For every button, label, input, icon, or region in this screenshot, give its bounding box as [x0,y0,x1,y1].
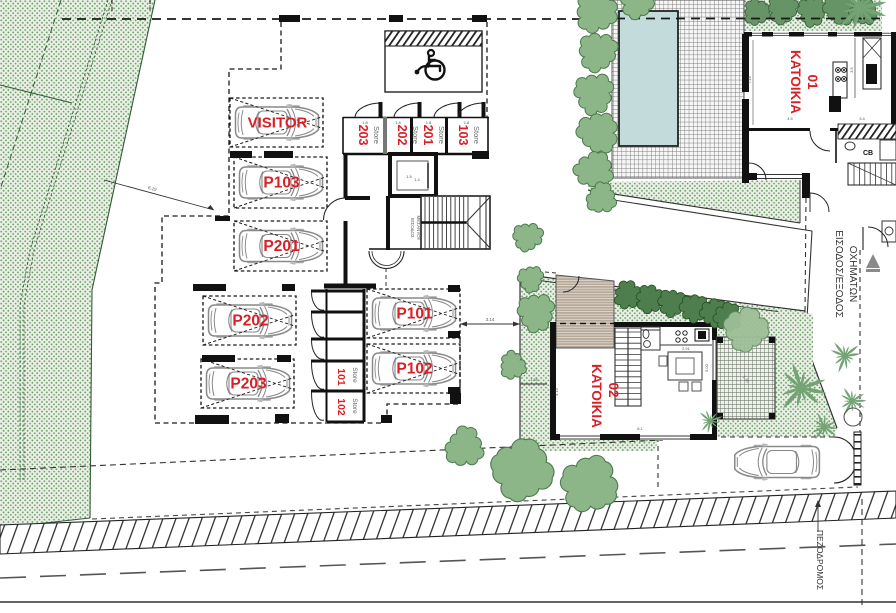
svg-text:ΠΕΖΟΔΡΟΜΟΣ: ΠΕΖΟΔΡΟΜΟΣ [815,530,825,590]
svg-text:Store: Store [351,367,358,383]
svg-text:203: 203 [356,125,370,146]
svg-text:P201: P201 [263,238,300,255]
svg-text:Store: Store [372,126,381,144]
svg-text:ΕΙΣΟΔΟΣ: ΕΙΣΟΔΟΣ [410,218,415,238]
svg-text:1.5: 1.5 [406,174,412,179]
svg-text:CB: CB [863,150,873,157]
svg-text:3.14: 3.14 [486,317,495,322]
svg-text:P202: P202 [232,313,268,330]
svg-text:01: 01 [805,74,820,90]
svg-text:ΚΑΤΟΙΚΙΑ: ΚΑΤΟΙΚΙΑ [589,364,604,428]
svg-text:VISITOR: VISITOR [248,115,308,132]
svg-text:1.35: 1.35 [530,377,539,382]
svg-text:Store: Store [472,126,481,144]
svg-text:8.1: 8.1 [637,426,643,431]
svg-text:1.8: 1.8 [426,120,432,125]
svg-text:102: 102 [335,398,347,416]
svg-text:202: 202 [395,125,409,146]
svg-text:103: 103 [456,125,470,146]
svg-text:1.8: 1.8 [362,120,368,125]
svg-text:P101: P101 [396,306,433,323]
svg-text:P203: P203 [230,376,267,393]
svg-text:P102: P102 [396,361,432,378]
svg-text:201: 201 [421,125,435,146]
svg-text:Store: Store [411,126,420,144]
svg-text:1.8: 1.8 [395,120,401,125]
svg-text:4.15: 4.15 [554,387,559,396]
svg-text:1.8: 1.8 [464,120,470,125]
svg-text:Store: Store [351,398,358,414]
svg-text:101: 101 [335,368,347,386]
svg-text:ΜΕΣΑΝΥΟΥ: ΜΕΣΑΝΥΟΥ [416,216,421,241]
svg-text:5.00: 5.00 [704,363,709,372]
svg-text:ΕΙΣΟΔΟΣ/ΕΞΟΔΟΣ: ΕΙΣΟΔΟΣ/ΕΞΟΔΟΣ [833,230,844,318]
svg-text:Store: Store [437,126,446,144]
svg-text:1.4: 1.4 [414,177,420,182]
svg-text:P103: P103 [263,175,300,192]
svg-text:02: 02 [606,382,621,397]
svg-text:ΚΑΤΟΙΚΙΑ: ΚΑΤΟΙΚΙΑ [788,50,803,114]
svg-text:4.5: 4.5 [787,116,793,121]
svg-text:7.15: 7.15 [747,75,752,84]
svg-text:3.4: 3.4 [859,116,865,121]
svg-text:2.91: 2.91 [682,346,691,351]
svg-text:ΟΧΗΜΑΤΩΝ: ΟΧΗΜΑΤΩΝ [847,246,858,303]
svg-text:3.5: 3.5 [849,66,854,72]
